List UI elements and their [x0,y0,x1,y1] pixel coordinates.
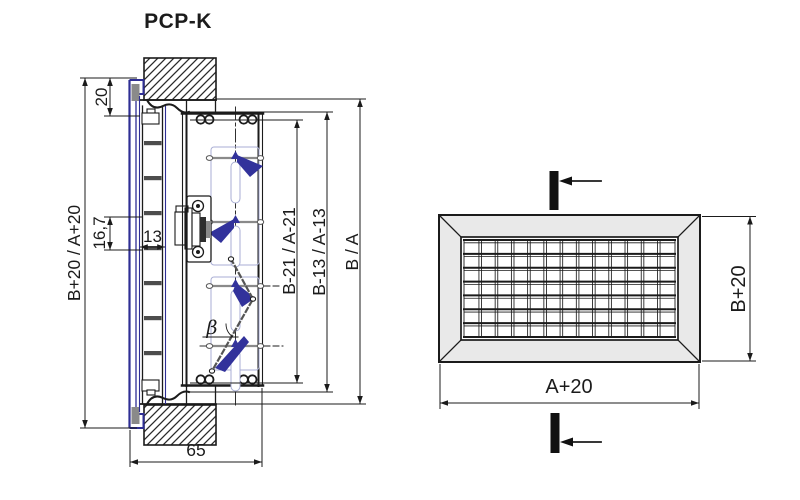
section-arrow-bottom [560,438,573,447]
front-blade-section [144,316,162,320]
rod-eyelet [257,156,263,161]
rod-eyelet [206,156,212,161]
drawing-canvas: β B+20 / A+20 20 16,7 13 B-21 / A-21 B-1… [0,0,800,500]
dim-flange-line-arrow [107,78,113,86]
retainer-clip [205,375,213,383]
dim-height-line-arrow [747,353,753,361]
dim-overall-line-arrow [82,420,88,428]
product-title: PCP-K [144,10,212,33]
retainer-clip [197,375,205,383]
control-mechanism [175,196,211,262]
rod-eyelet [206,344,212,349]
dim-width-line-arrow [440,400,448,406]
rod-eyelet [257,220,263,225]
gasket-bottom [132,407,140,424]
dim-inner21-line-arrow [294,375,300,383]
clip-tab-notch-bottom [147,390,155,395]
section-mark-top [550,171,602,210]
dim-pitch-label: 16,7 [90,216,109,249]
rod-eyelet [206,284,212,289]
dim-duct-label: B / A [342,233,362,270]
technical-drawing: β B+20 / A+20 20 16,7 13 B-21 / A-21 B-1… [0,0,800,500]
dim-depth-label: 65 [186,440,205,460]
frame-profile [130,80,144,428]
dim-width-label: A+20 [545,376,592,398]
section-mark-bottom [551,413,602,453]
front-blade-section [144,281,162,285]
dim-height-line-arrow [747,217,753,225]
dim-inner13-label: B-13 / A-13 [309,208,329,296]
clip-tab-bottom [142,380,159,391]
gasket-top [132,84,140,101]
front-blade-section [144,211,162,215]
wall-section-bottom [144,405,216,445]
clip-tab-top [142,113,159,124]
grille-opening [461,237,678,340]
front-view: A+20 B+20 [439,171,750,453]
dim-flange-line-arrow [107,108,113,116]
dim-inner21-label: B-21 / A-21 [279,207,299,295]
retainer-clip [240,375,248,383]
dim-depth-line-arrow [254,459,262,465]
dim-overall-line-arrow [82,78,88,86]
retainer-clip [248,375,256,383]
dim-inner13-line-arrow [324,112,330,120]
dim-flange-label: 20 [92,88,111,107]
dim-inner13-line-arrow [324,384,330,392]
dim-blade-width-label: 13 [143,227,162,246]
dim-inner21-line-arrow [294,120,300,128]
dim-duct-line-arrow [357,396,363,404]
blade-slot [231,162,240,203]
angle-beta-label: β [206,317,218,339]
wall-section-top [144,58,216,100]
section-arrow-top [559,177,572,186]
dim-overall-label: B+20 / A+20 [64,205,84,302]
dim-width-line-arrow [691,400,699,406]
front-grille-section [140,96,166,412]
rod-eyelet [257,344,263,349]
front-blade-section [144,176,162,180]
dim-duct-line-arrow [357,99,363,107]
dim-height-label: B+20 [728,265,750,312]
rod-eyelet [257,284,263,289]
front-blade-section [144,351,162,355]
dim-depth-line-arrow [130,459,138,465]
front-blade-section [144,141,162,145]
